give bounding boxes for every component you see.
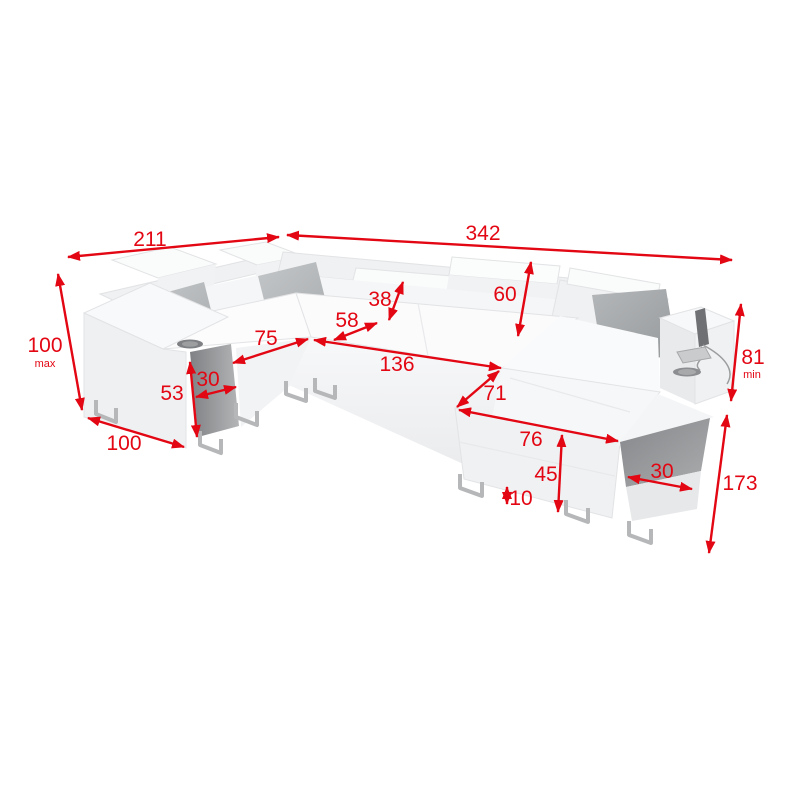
dim-label: 100 <box>27 334 62 357</box>
leg-icon <box>629 521 651 543</box>
dim-label: 136 <box>379 353 414 376</box>
diagram-canvas: 211 342 100 max 100 53 30 75 <box>0 0 800 800</box>
dim-label: 53 <box>160 382 183 405</box>
dim-suffix-label: max <box>35 358 56 370</box>
cup-holder-inner <box>678 369 696 375</box>
dim-label: 30 <box>196 368 219 391</box>
dimension-back-height: 100 max <box>27 274 82 410</box>
dim-label: 58 <box>335 309 358 332</box>
dimension-overall-width-right: 342 <box>287 222 732 260</box>
dimension-floor-clearance: 10 <box>507 487 533 510</box>
cup-holder-inner <box>182 341 198 347</box>
dimension-overall-depth-right: 173 <box>709 415 758 553</box>
dim-label: 75 <box>254 327 277 350</box>
dim-label: 30 <box>650 460 673 483</box>
dim-label: 10 <box>509 487 532 510</box>
dimension-armrest-height: 81 min <box>731 304 765 401</box>
dim-label: 81 <box>741 346 764 369</box>
sofa-dimension-diagram: 211 342 100 max 100 53 30 75 <box>0 0 800 800</box>
dim-label: 173 <box>722 472 757 495</box>
dim-label: 342 <box>465 222 500 245</box>
dim-label: 45 <box>534 463 557 486</box>
dim-suffix-label: min <box>743 369 761 381</box>
dim-label: 38 <box>368 288 391 311</box>
dim-label: 211 <box>133 228 166 251</box>
dim-label: 100 <box>106 432 141 455</box>
dim-label: 71 <box>483 382 506 405</box>
dim-label: 76 <box>519 428 542 451</box>
dim-label: 60 <box>493 283 516 306</box>
